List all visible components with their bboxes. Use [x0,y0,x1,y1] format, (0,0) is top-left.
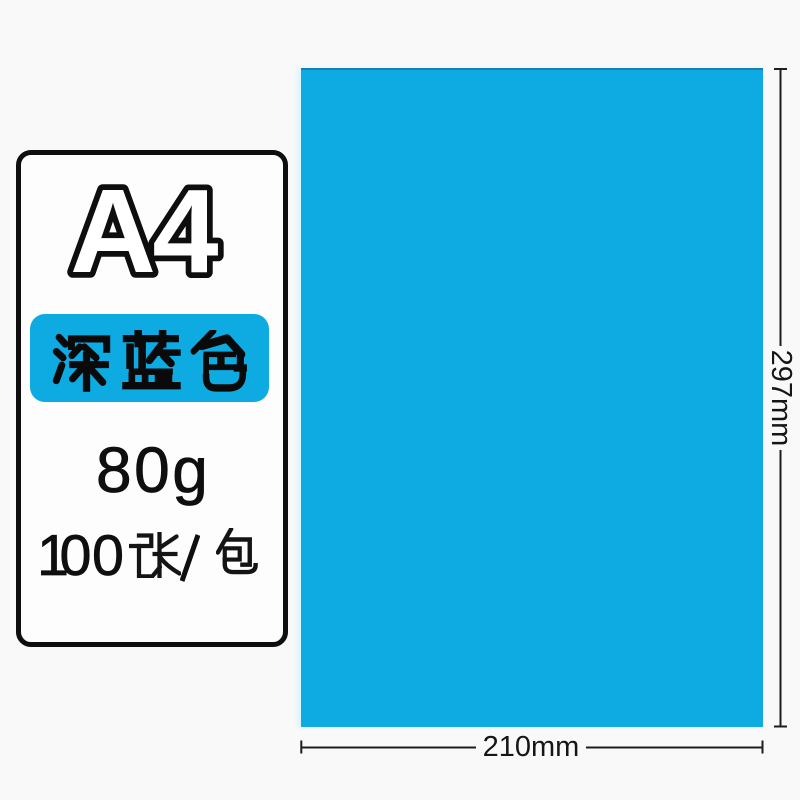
svg-text:210mm: 210mm [483,731,580,763]
svg-text:297mm: 297mm [765,350,797,447]
